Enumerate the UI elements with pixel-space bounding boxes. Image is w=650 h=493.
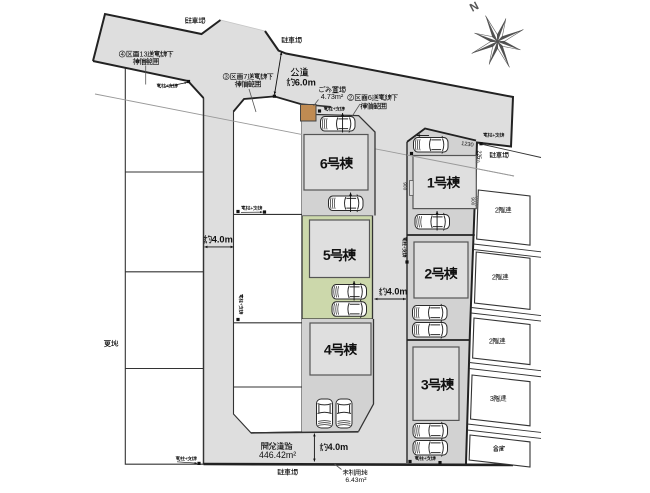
svg-text:2: 2	[349, 96, 352, 102]
svg-text:3: 3	[421, 377, 429, 393]
svg-text:6.0m: 6.0m	[295, 77, 316, 87]
svg-text:+: +	[492, 133, 495, 139]
svg-text:5: 5	[323, 247, 331, 263]
svg-text:4.0m: 4.0m	[328, 442, 349, 452]
svg-text:6: 6	[368, 93, 372, 102]
svg-text:3: 3	[225, 75, 228, 81]
svg-text:+: +	[333, 107, 336, 113]
svg-text:446.42m²: 446.42m²	[259, 450, 296, 460]
svg-text:2: 2	[489, 338, 493, 346]
svg-text:+: +	[424, 456, 427, 462]
svg-text:+: +	[250, 206, 253, 212]
svg-text:2: 2	[492, 274, 496, 282]
svg-text:2: 2	[495, 207, 499, 215]
svg-text:2: 2	[424, 266, 432, 282]
svg-text:6: 6	[320, 155, 328, 171]
svg-text:900: 900	[469, 197, 475, 205]
svg-text:13: 13	[139, 50, 147, 59]
svg-text:7: 7	[243, 72, 247, 81]
svg-text:+: +	[166, 84, 169, 90]
svg-text:225: 225	[476, 151, 482, 160]
svg-text:4.0m: 4.0m	[212, 235, 233, 245]
svg-text:4.0m: 4.0m	[387, 287, 408, 297]
svg-text:900: 900	[402, 182, 408, 190]
svg-text:+: +	[185, 456, 188, 462]
svg-text:+: +	[401, 246, 406, 249]
svg-text:4.73m²: 4.73m²	[321, 92, 344, 101]
svg-text:3: 3	[490, 395, 494, 403]
svg-text:4: 4	[324, 342, 332, 358]
svg-text:+: +	[237, 303, 242, 306]
svg-text:6.43m²: 6.43m²	[345, 477, 367, 484]
svg-text:1: 1	[427, 175, 435, 191]
